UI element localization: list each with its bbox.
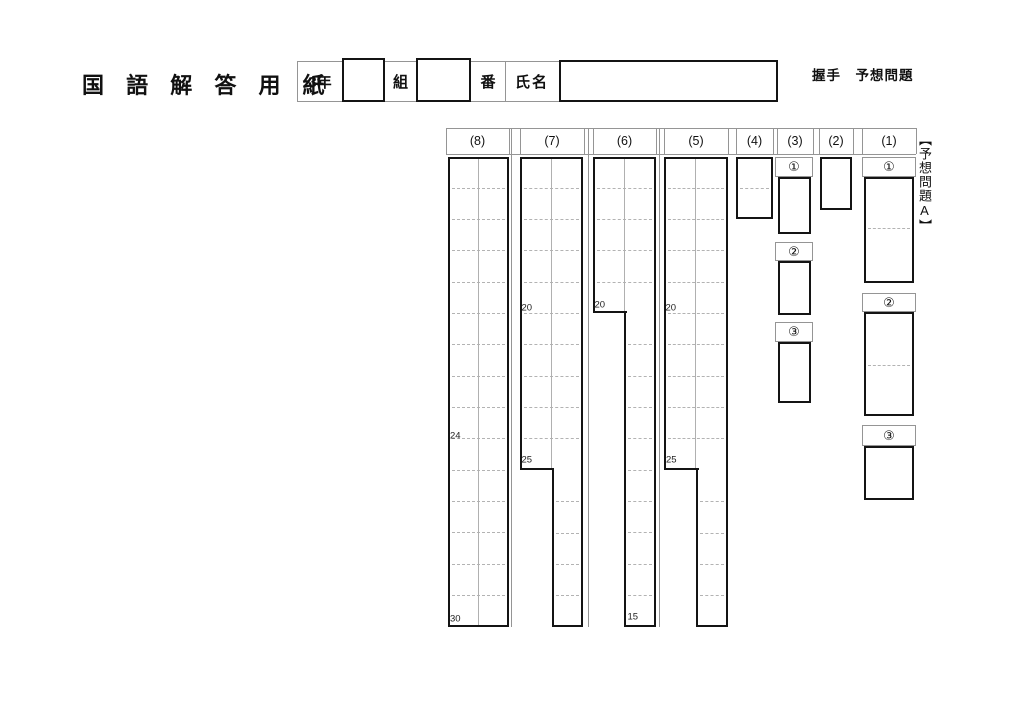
- answer-box-q6-step: [593, 311, 627, 313]
- char-count-mark: 15: [628, 612, 639, 622]
- grade-label: 3年: [298, 61, 342, 102]
- char-guide-dash: [668, 376, 724, 377]
- column-header-2: (2): [819, 128, 853, 154]
- answer-box-q1-1[interactable]: [864, 177, 914, 283]
- name-label: 氏名: [505, 61, 559, 102]
- char-guide-dash: [628, 438, 652, 439]
- char-count-mark: 25: [666, 455, 677, 465]
- char-guide-dash: [668, 344, 724, 345]
- char-guide-dash: [628, 344, 652, 345]
- char-guide-dash: [556, 501, 579, 502]
- class-label: 組: [385, 61, 416, 102]
- char-guide-dash: [668, 250, 724, 251]
- char-guide-dash: [628, 407, 652, 408]
- answer-box-q3-3[interactable]: [778, 342, 811, 403]
- header-tick: [509, 128, 510, 154]
- char-guide-dash: [628, 470, 652, 471]
- char-guide-dash: [628, 595, 652, 596]
- header-tick: [773, 128, 774, 154]
- exam-title: 握手 予想問題: [812, 64, 914, 84]
- header-tick: [584, 128, 585, 154]
- column-header-7: (7): [520, 128, 584, 154]
- char-guide-dash: [700, 595, 724, 596]
- answer-box-q3-2[interactable]: [778, 261, 811, 315]
- sub-label-q1-3: ③: [862, 425, 916, 446]
- class-input-box[interactable]: [342, 58, 385, 102]
- header-band-bottom: [446, 154, 916, 155]
- char-count-mark: 25: [522, 455, 533, 465]
- column-separator: [588, 128, 589, 627]
- answer-sheet: 国 語 解 答 用 紙 3年 組 番 氏名 握手 予想問題 【予想問題A】 (8…: [0, 0, 1024, 724]
- answer-box-q5-step: [664, 468, 699, 470]
- char-guide-dash: [740, 188, 769, 189]
- char-guide-dash: [628, 376, 652, 377]
- number-label: 番: [471, 61, 505, 102]
- char-guide-dash: [628, 532, 652, 533]
- char-count-mark: 20: [666, 303, 677, 313]
- char-guide-dash: [868, 228, 910, 229]
- sub-label-q1-2: ②: [862, 293, 916, 312]
- column-header-3: (3): [777, 128, 813, 154]
- sub-label-q3-2: ②: [775, 242, 813, 261]
- char-guide-dash: [700, 533, 724, 534]
- column-header-1: (1): [862, 128, 916, 154]
- char-guide-dash: [868, 365, 910, 366]
- char-count-mark: 30: [450, 614, 461, 624]
- char-guide-dash: [628, 564, 652, 565]
- char-guide-dash: [668, 313, 724, 314]
- answer-box-q4[interactable]: [736, 157, 773, 219]
- header-tick: [813, 128, 814, 154]
- side-label-vertical: 【予想問題A】: [915, 133, 933, 253]
- header-tick: [853, 128, 854, 154]
- answer-box-q5-lower[interactable]: [696, 470, 728, 627]
- char-count-mark: 24: [450, 431, 461, 441]
- char-guide-dash: [668, 188, 724, 189]
- char-guide-dash: [556, 533, 579, 534]
- header-tick: [656, 128, 657, 154]
- number-input-box[interactable]: [416, 58, 471, 102]
- header-tick: [916, 128, 917, 154]
- sub-label-q3-1: ①: [775, 157, 813, 177]
- column-header-6: (6): [593, 128, 656, 154]
- name-input-box[interactable]: [559, 60, 778, 102]
- char-guide-dash: [668, 407, 724, 408]
- answer-box-q2[interactable]: [820, 157, 852, 210]
- answer-box-q5-upper[interactable]: [664, 157, 728, 470]
- answer-box-q7-divider: [551, 159, 552, 468]
- char-guide-dash: [556, 595, 579, 596]
- column-separator: [511, 128, 512, 627]
- page-title: 国 語 解 答 用 紙: [82, 68, 333, 100]
- answer-box-q8-divider: [478, 159, 479, 625]
- column-header-8: (8): [446, 128, 509, 154]
- char-count-mark: 20: [595, 300, 606, 310]
- column-header-4: (4): [736, 128, 773, 154]
- char-count-mark: 20: [522, 303, 533, 313]
- char-guide-dash: [668, 438, 724, 439]
- sub-label-q1-1: ①: [862, 157, 916, 177]
- answer-box-q3-1[interactable]: [778, 177, 811, 234]
- header-tick: [728, 128, 729, 154]
- char-guide-dash: [556, 564, 579, 565]
- char-guide-dash: [628, 501, 652, 502]
- sub-label-q3-3: ③: [775, 322, 813, 342]
- char-guide-dash: [700, 501, 724, 502]
- answer-box-q7-lower[interactable]: [552, 470, 583, 627]
- answer-box-q1-2[interactable]: [864, 312, 914, 416]
- answer-box-q5-divider: [695, 159, 696, 468]
- column-separator: [659, 128, 660, 627]
- char-guide-dash: [700, 564, 724, 565]
- answer-box-q6-divider: [624, 159, 625, 311]
- answer-box-q1-3[interactable]: [864, 446, 914, 500]
- char-guide-dash: [668, 282, 724, 283]
- column-header-5: (5): [664, 128, 728, 154]
- answer-box-q6-lower[interactable]: [624, 313, 656, 627]
- char-guide-dash: [668, 219, 724, 220]
- answer-box-q7-step: [520, 468, 554, 470]
